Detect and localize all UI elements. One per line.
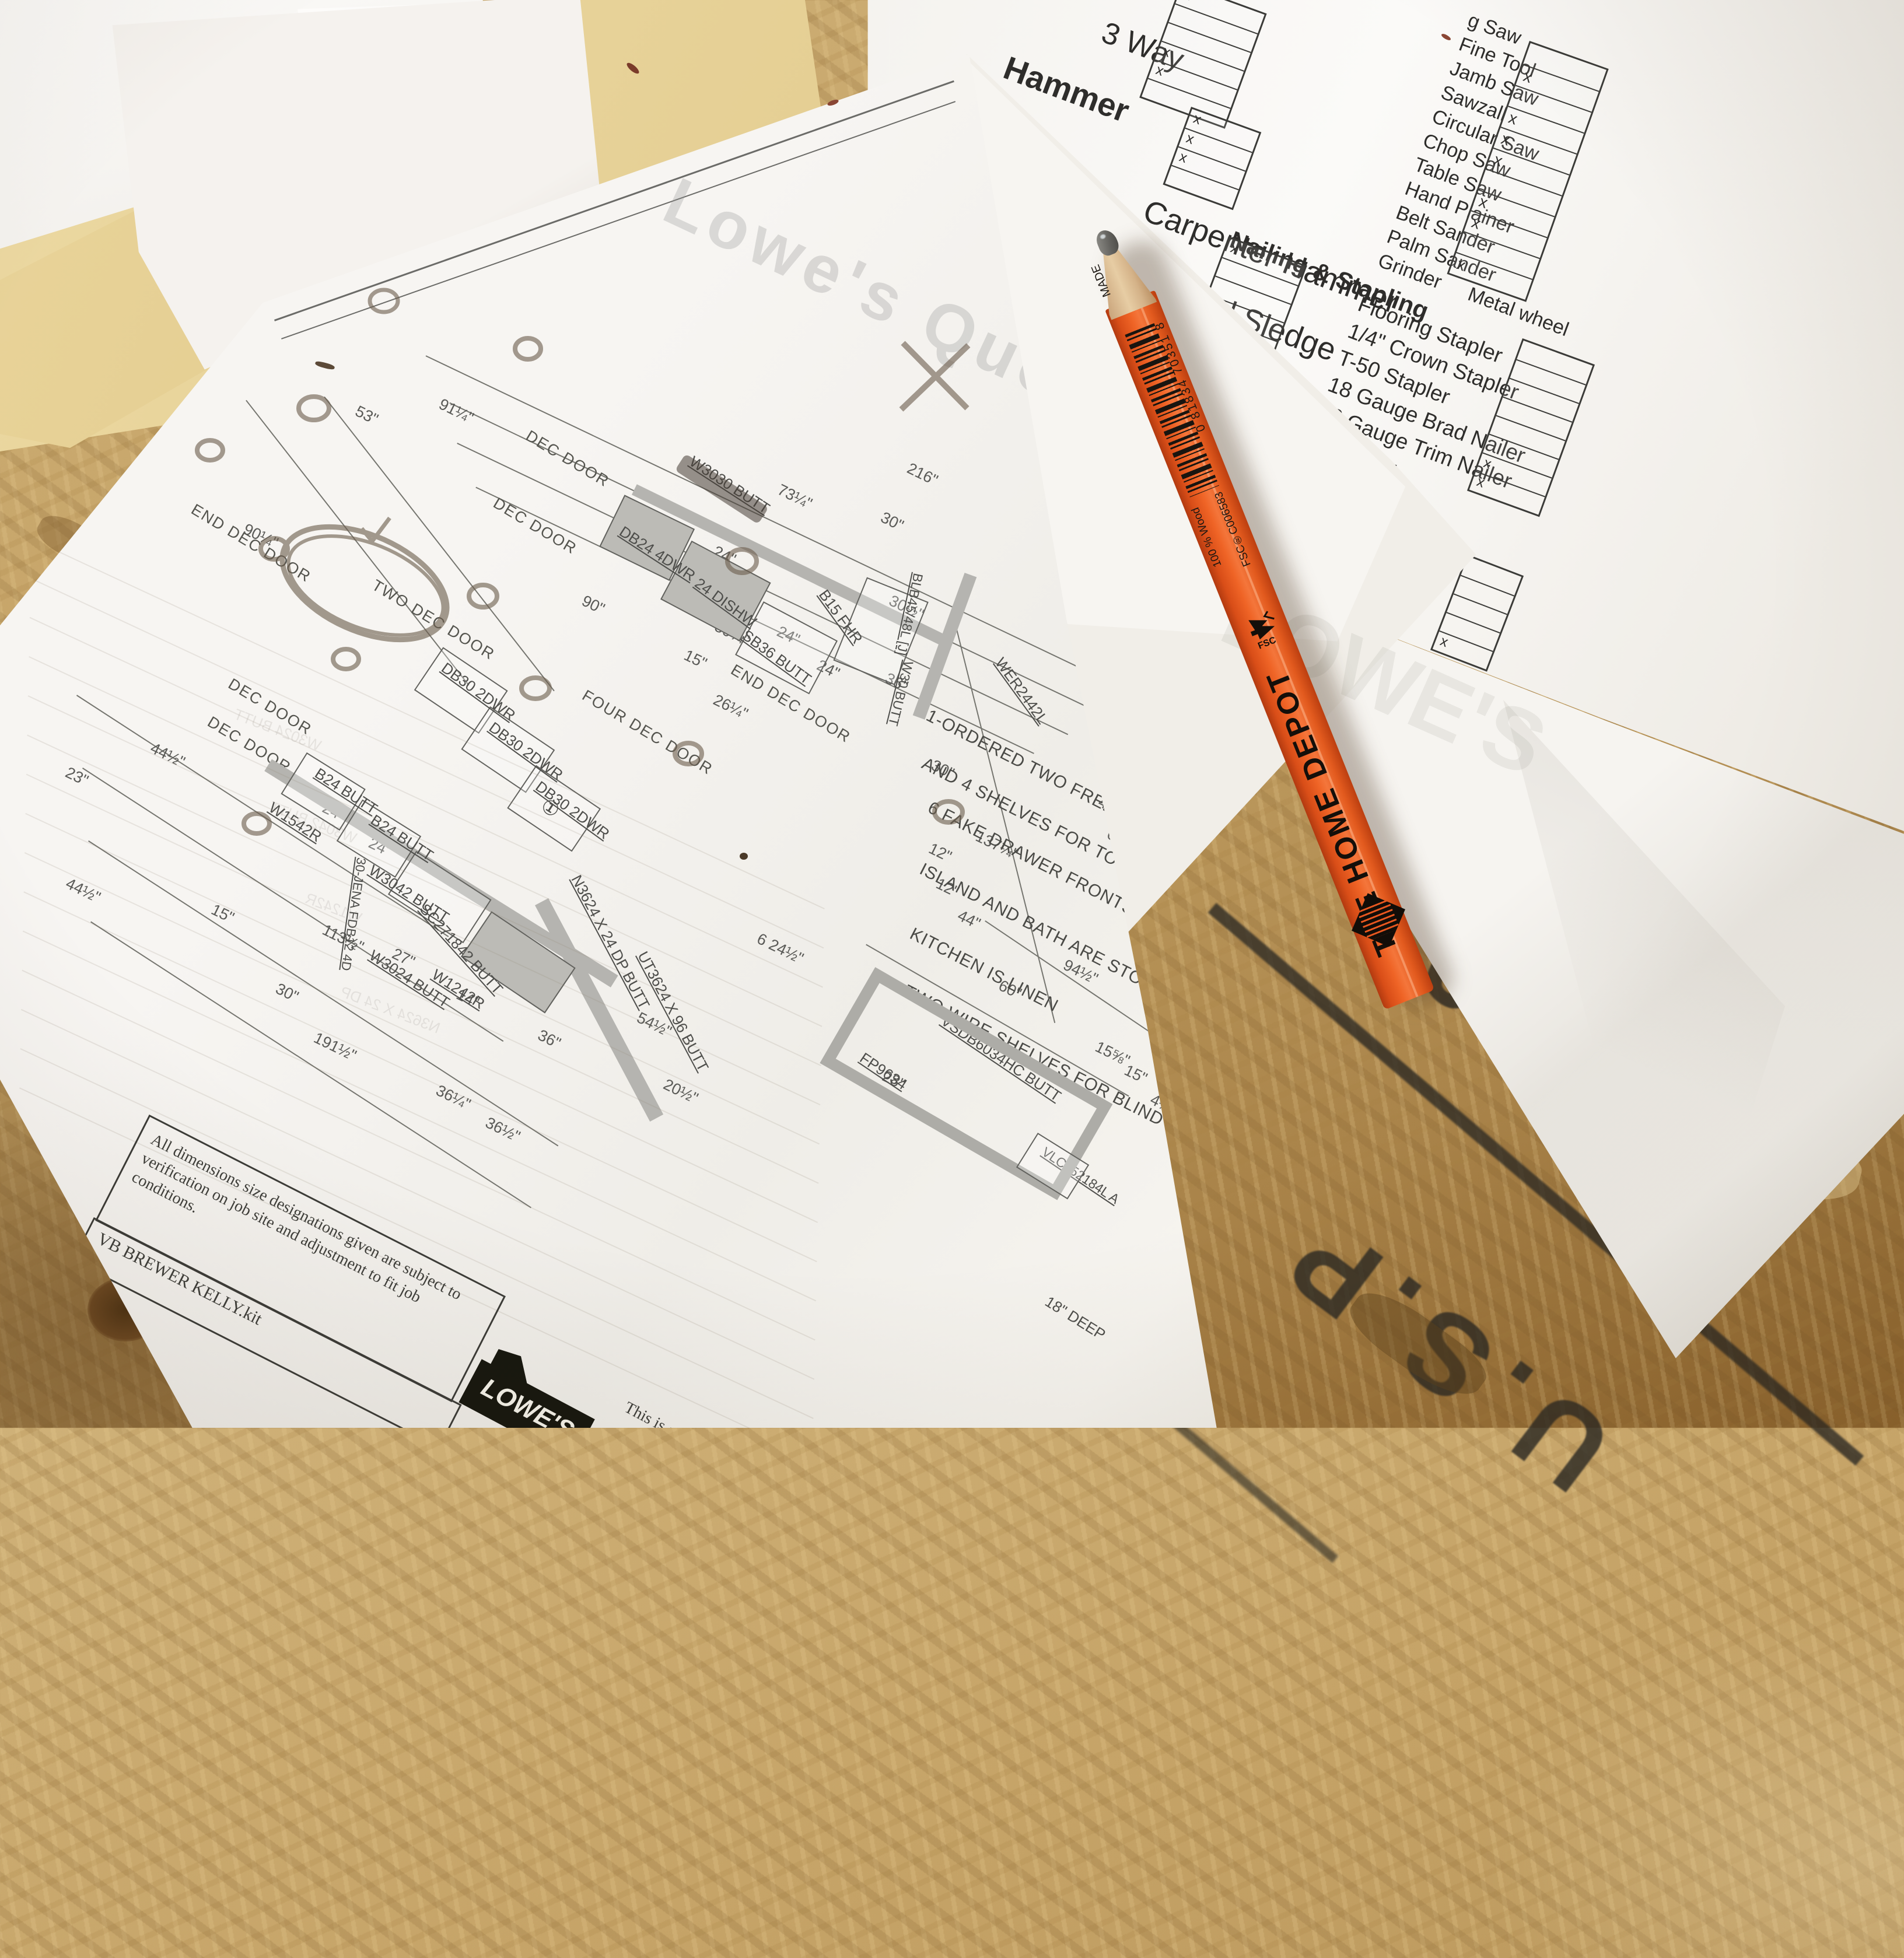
cabinet-label: W3030 BUTT [686,453,773,518]
copyright-line: released or copied unless appli [618,1426,803,1537]
dimension-label: 24" [366,834,394,860]
checklist-item: Nailer [1338,439,1399,481]
dim-line [246,400,469,686]
checklist-item: 1/4" Crown Stapler [1345,318,1522,405]
dimension-label: 15⅝" [1092,1038,1132,1070]
dimension-label: 15" [208,901,237,927]
dim-line [475,487,1034,754]
ruled-ghost-line [30,578,824,949]
dimension-label: 15" [681,646,709,672]
dimension-label: 30½" [886,591,926,624]
manila-folder [0,0,875,525]
checkbox-table: x [1192,236,1307,362]
ruled-ghost-line [32,538,825,909]
door-label: FOUR DEC DOOR [579,686,716,779]
dimension-label: 36¼" [433,1081,473,1113]
osb-chip [1657,151,1796,251]
blueprint-clip: Lowe's Quote53"91¼"90¼"216"73¼"30"24"30½… [0,0,1904,1428]
copyright-line: This is an original design and mus [621,1399,828,1521]
dimension-label: 53" [352,402,381,429]
blueprint-border-line [16,1123,238,1521]
bleed-through-text: W3024 BUTT [232,705,324,755]
osb-chip [0,905,89,1067]
cabinet-label: 30-JENA FDB12 4D [338,857,369,972]
dimension-label: 36½" [482,1113,523,1146]
dimension-label: 12" [926,839,954,866]
osb-knot [35,709,87,749]
ruled-ghost-line [26,774,820,1145]
dimension-label: 30" [272,980,301,1006]
dim-line [985,920,1188,1059]
dimension-label: 20½" [660,1076,701,1108]
plan-note: AND 4 SHELVES FOR TOP [919,754,1133,876]
cabinet-label: SC271842 BUTT [416,900,507,998]
cabinet-label: UT3624 X 96 BUTT [633,948,712,1074]
dimension-label: 26¼" [710,691,751,723]
lowes-logo: LOWE'S [459,1340,605,1462]
door-label: END DEC DOOR [727,661,854,747]
wall-band [632,484,946,646]
cabinet-label: W3024 BUTT [366,947,453,1012]
dimension-label: 91¼" [436,395,476,427]
dim-line [956,626,1055,1023]
ruled-ghost-line [23,930,816,1301]
copyright-line: been paid or job order place [614,1453,785,1556]
ruled-ghost-line [28,695,821,1066]
dimension-label: 48" [1095,793,1124,819]
dimension-label: 36" [882,670,911,696]
ruled-ghost-line [30,617,823,988]
cabinet-label: DB24 4DWR [616,523,699,585]
cabinet-label: DB30 2DWR [485,719,566,784]
island-cabinet-box [1016,1133,1089,1199]
osb-chip [1780,832,1889,907]
wall-band [264,759,618,987]
door-label: TWO DEC DOOR [369,576,498,664]
dimension-label: 44" [954,906,983,933]
cabinet-box [735,601,838,694]
bleed-through-text: W1242R [303,889,365,927]
cabinet-box [660,541,771,642]
cabinet-box [337,800,421,878]
dimension-label: 59¼" [712,618,752,650]
osb-chip [32,507,120,578]
debris-fleck [740,853,748,860]
dimension-label: 12" [933,875,962,901]
cabinet-label: B15 FHR [815,586,866,647]
cabinet-label: 18" DEEP [1042,1293,1109,1344]
cabinet-label: 24 DISHW [691,575,760,631]
dim-line [457,443,1068,735]
cabinet-box [461,911,576,1013]
dimension-label: 30" [928,756,957,783]
door-label: DEC DOOR [523,427,612,491]
photo-vignette [0,0,1904,1428]
dimension-label: 63" [1104,825,1133,851]
dimension-label: 4½" [1147,1091,1180,1119]
dim-line [82,768,503,1042]
checklist-section-title: Hammer [999,48,1135,129]
cabinet-box [507,765,601,852]
blueprint-border-line [281,101,956,339]
checkbox-table: xx [1467,338,1595,517]
blueprint-border-line [274,80,954,321]
dim-line [449,402,1102,715]
dim-line [88,840,558,1147]
pencil-smudge [675,454,769,524]
dimension-label: 54½" [634,1008,674,1041]
cabinet-box [388,851,492,944]
ruled-ghost-line [27,734,820,1105]
ruled-ghost-line [25,813,818,1184]
cabinet-box [599,495,695,581]
cabinet-box [414,647,508,734]
door-label: DEC DOOR [490,494,580,558]
dim-line [866,944,1129,1097]
dim-line [76,695,449,937]
loose-paper [192,0,776,455]
plan-note: ISLAND AND BATH ARE STONE COLOR [916,860,1232,1034]
dimension-label: 28" [879,1067,908,1094]
pencil-scribbles [0,0,1904,1428]
island-outline [820,967,1112,1200]
dimension-label: 24" [710,542,738,569]
dimension-label: 73¼" [775,481,815,513]
door-label: DEC DOOR [225,675,315,739]
osb-stamp-line-2 [1146,1397,1339,1563]
dim-line [90,922,531,1209]
dimension-label: 24" [774,622,803,649]
cabinet-label: N3624 X 24 DP BUTT [568,872,653,1012]
ruled-ghost-line [22,970,815,1341]
dimension-label: 14" [453,986,482,1012]
manila-folder-edge [0,0,875,700]
debris-fleck [625,61,640,75]
checkbox-table: xxx [1139,0,1266,129]
cabinet-label: VLC152184L A [1039,1144,1122,1207]
dimension-label: 191½" [311,1029,359,1065]
osb-stamp-usp: U.S.P [1253,1185,1634,1518]
dimension-label: 24" [320,798,348,825]
photo-construction-plans: { "scene": "Photograph of kitchen cabine… [0,0,1904,1428]
curled-paper [99,0,758,420]
cabinet-label: B24 BUTT [367,811,437,864]
dimension-label: 24" [814,656,842,682]
dimension-label: 90" [579,592,607,618]
dimension-label: 44½" [148,739,188,771]
cabinet-label: DB30 2DWR [438,659,519,725]
ruled-ghost-line [29,656,822,1027]
dimension-label: 44½" [63,874,103,906]
dimension-label: 94½" [1060,956,1101,988]
osb-chip [1716,1121,1866,1211]
ruled-ghost-line [19,1087,813,1458]
cabinet-label: VSDB6034HC BUTT [937,1011,1064,1105]
dimension-label: 6 24½" [754,930,807,968]
debris-fleck [1440,33,1451,41]
osb-knot [87,1277,163,1341]
dimension-label: 27" [389,945,418,971]
checklist-item: T-50 Stapler [1335,345,1454,409]
plan-note: 6 FAKE DRAWER FRONTS FOR ISLAND [925,798,1242,973]
cabinet-label: B24 BUTT [311,765,381,818]
dimension-label: 216" [904,460,941,490]
checkbox-table: xxx [1163,107,1261,210]
loose-paper [0,0,525,303]
dim-line [324,397,555,692]
cabinet-box [833,577,928,685]
cabinet-box [461,706,555,793]
dimension-label: 60" [996,976,1024,1003]
cabinet-label: W1242R [429,966,488,1013]
cabinet-label: WER2442L [991,654,1051,728]
ruled-ghost-line [21,1009,814,1380]
ruled-ghost-line [23,891,817,1262]
cabinet-label: DB30 2DWR [532,777,613,843]
project-name-row: VB BREWER KELLY.kit [72,1217,462,1448]
dimension-label: 113½" [319,921,366,957]
checklist-saw-item: Sawzall [1438,81,1510,127]
checklist-saw-item: g Saw [1465,9,1524,50]
bleed-through-text: W3042 BUTT [267,797,359,847]
ruled-ghost-line [24,852,818,1223]
cabinet-label: W3042 BUTT [366,861,453,927]
ruled-ghost-line [20,1048,813,1419]
door-label: END DEC DOOR [188,500,314,586]
debris-fleck [314,360,335,370]
dimension-label: 36" [517,944,546,971]
cabinet-label: SB36 BUTT [738,626,814,689]
dimension-label: 23" [62,763,91,790]
cabinet-label: W30 BUTT [885,659,916,727]
dimension-label: 90¼" [240,520,281,552]
plan-note: KITCHEN IS LINEN [907,924,1062,1016]
dimension-label: 15" [1121,1062,1150,1088]
dimension-label: 36" [535,1026,563,1052]
wall-band [913,573,977,720]
checklist-item: Flooring Stapler [1354,292,1506,368]
disclaimer-box: All dimensions size designations given a… [95,1115,506,1402]
cabinet-label: FP9634 [856,1049,911,1094]
lowes-quote-watermark: Lowe's Quote [653,163,1145,447]
cabinet-box [281,752,365,831]
blueprint-sheet [0,0,1904,1428]
dim-line [426,355,1105,680]
cabinet-label: ① [536,794,563,823]
dimension-label: 30" [878,509,907,535]
wall-band [535,898,663,1122]
debris-fleck [827,99,839,107]
plan-note: TWO WIRE SHELVES FOR BLIND BASE [900,982,1215,1155]
dimension-label: 137¼" [972,828,1021,864]
osb-chip [1759,420,1870,508]
cabinet-label: BLB45/48L [J] [893,572,926,657]
bleed-through-text: N3624 X 24 DP [338,983,443,1038]
cabinet-label: W1542R [265,798,325,846]
door-label: DEC DOOR [204,713,294,777]
checkbox-table: xxxxxxx [1447,41,1608,302]
